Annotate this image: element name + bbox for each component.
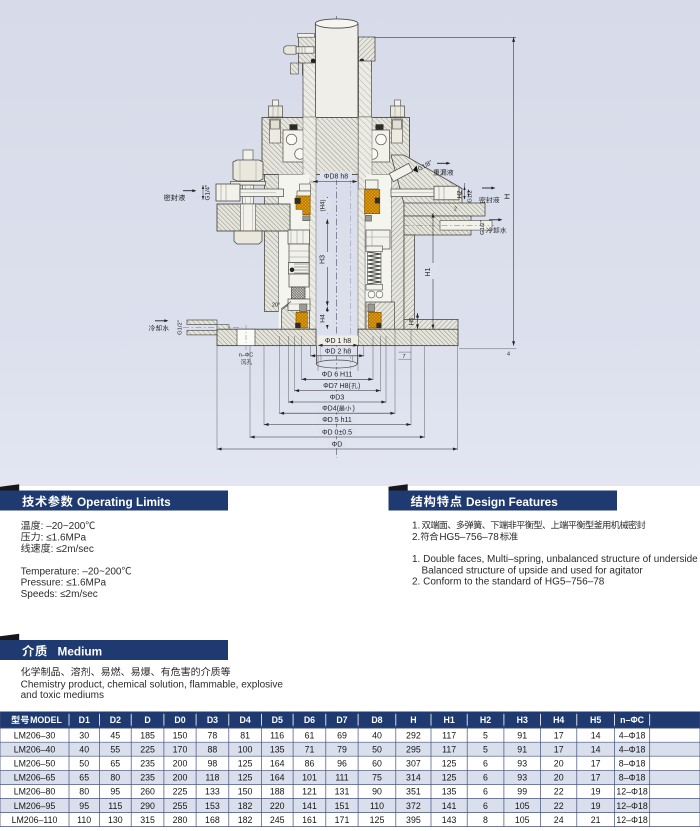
svg-text:H5: H5 [409,317,416,325]
svg-text:1. Double faces, Multi–spring,: 1. Double faces, Multi–spring, unbalance… [412,554,700,565]
svg-text:D3: D3 [207,715,218,725]
svg-text:20°: 20° [272,303,280,309]
svg-text:314: 314 [406,773,421,783]
svg-text:1.: 1. [412,520,420,531]
svg-text:65: 65 [79,773,89,783]
svg-text:95: 95 [79,801,89,811]
svg-text:60: 60 [372,759,382,769]
svg-text:200: 200 [173,773,188,783]
svg-text:81: 81 [240,730,250,740]
svg-text:71: 71 [305,745,315,755]
svg-text:n–ΦC: n–ΦC [620,715,644,725]
svg-text:4–Φ18: 4–Φ18 [619,745,646,755]
svg-text:86: 86 [305,759,315,769]
svg-text:40: 40 [372,730,382,740]
svg-text:220: 220 [270,801,285,811]
svg-text:7: 7 [403,354,406,360]
svg-text:88: 88 [208,745,218,755]
svg-text:17: 17 [554,730,564,740]
svg-text:150: 150 [173,730,188,740]
svg-text:D1: D1 [79,715,90,725]
svg-text:100: 100 [238,745,253,755]
svg-text:H4: H4 [553,715,564,725]
svg-text:121: 121 [302,787,317,797]
svg-text:20: 20 [554,759,564,769]
svg-text:6: 6 [483,801,488,811]
svg-text:225: 225 [173,787,188,797]
svg-text:95: 95 [110,787,120,797]
svg-text:105: 105 [515,801,530,811]
svg-text:H3: H3 [319,255,326,264]
svg-text:307: 307 [406,759,421,769]
svg-text:151: 151 [335,801,350,811]
svg-text:161: 161 [302,815,317,825]
svg-text:: ≤2m/sec: : ≤2m/sec [51,544,94,555]
svg-text:21: 21 [591,815,601,825]
svg-text:ΦD 0±0.5: ΦD 0±0.5 [322,429,352,436]
svg-text:22: 22 [554,787,564,797]
svg-text:110: 110 [77,815,91,825]
svg-text:6: 6 [483,773,488,783]
svg-text:4: 4 [507,352,510,358]
svg-text:164: 164 [270,759,285,769]
svg-text:91: 91 [517,730,527,740]
svg-text:LM206–80: LM206–80 [14,787,56,797]
svg-text:78: 78 [208,730,218,740]
svg-text:Pressure: ≤1.6MPa: Pressure: ≤1.6MPa [21,578,107,589]
svg-text:D6: D6 [304,715,315,725]
svg-text:ΦD4(: ΦD4( [322,406,340,413]
svg-text:Medium: Medium [58,644,103,658]
svg-text:125: 125 [442,759,457,769]
svg-text:H1: H1 [443,715,454,725]
svg-text:135: 135 [442,787,457,797]
svg-text:2: 2 [454,207,457,213]
svg-text:12–Φ18: 12–Φ18 [616,815,648,825]
svg-text:H2: H2 [480,715,491,725]
svg-text:: –20~200: : –20~200 [41,521,86,532]
svg-text:141: 141 [302,801,317,811]
svg-text:H4: H4 [320,314,327,323]
svg-text:): ) [353,406,355,413]
svg-text:61: 61 [305,730,315,740]
svg-text:372: 372 [406,801,421,811]
svg-text:ΦD 5 h11: ΦD 5 h11 [322,417,352,424]
svg-text:22: 22 [554,801,564,811]
svg-text:ΦD: ΦD [332,441,343,448]
svg-text:12–Φ18: 12–Φ18 [616,801,648,811]
svg-text:115: 115 [108,801,122,811]
svg-text:91: 91 [517,745,527,755]
svg-text:ΦD 1 h8: ΦD 1 h8 [325,338,351,345]
svg-text:17: 17 [591,773,601,783]
svg-text:50: 50 [79,759,89,769]
svg-text:75: 75 [372,773,382,783]
svg-text:40: 40 [79,745,89,755]
svg-text:8–Φ18: 8–Φ18 [619,773,646,783]
svg-text:19: 19 [591,801,601,811]
svg-text:168: 168 [205,815,220,825]
svg-text:395: 395 [406,815,421,825]
svg-text:351: 351 [406,787,421,797]
svg-text:D: D [144,715,150,725]
svg-text:H: H [410,715,416,725]
svg-text:H5: H5 [590,715,601,725]
svg-text:LM206–30: LM206–30 [14,730,56,740]
svg-text:143: 143 [442,815,457,825]
svg-text:65: 65 [110,759,120,769]
svg-text:ΦD 6 H11: ΦD 6 H11 [322,372,353,379]
svg-text:4–Φ18: 4–Φ18 [619,730,646,740]
svg-text:: ≤1.6MPa: : ≤1.6MPa [41,532,87,543]
svg-text:131: 131 [335,787,350,797]
svg-text:LM206–65: LM206–65 [14,773,56,783]
svg-text:141: 141 [442,801,457,811]
svg-text:ΦD3: ΦD3 [330,394,345,401]
svg-text:2. Conform to the standard of: 2. Conform to the standard of HG5–756–78 [412,577,605,588]
svg-text:101: 101 [302,773,317,783]
svg-text:D7: D7 [336,715,347,725]
svg-text:LM206–110: LM206–110 [12,815,58,825]
svg-text:LM206–50: LM206–50 [14,759,56,769]
svg-text:ΦD7 H8(: ΦD7 H8( [323,383,351,390]
svg-text:19: 19 [591,787,601,797]
svg-text:Design Features: Design Features [466,495,558,509]
svg-text:5: 5 [483,745,488,755]
svg-text:99: 99 [517,787,527,797]
svg-text:14: 14 [591,745,601,755]
svg-text:G1/2": G1/2" [178,320,184,335]
svg-text:30: 30 [79,730,89,740]
svg-text:8: 8 [483,815,488,825]
svg-text:93: 93 [517,773,527,783]
svg-text:153: 153 [205,801,220,811]
svg-text:280: 280 [173,815,188,825]
svg-text:133: 133 [205,787,220,797]
svg-text:24: 24 [554,815,564,825]
svg-text:125: 125 [238,759,253,769]
svg-text:): ) [358,383,360,390]
svg-text:H1: H1 [425,267,432,276]
svg-text:MODEL: MODEL [30,715,62,725]
svg-text:H: H [503,194,512,199]
svg-text:Chemistry product, chemical so: Chemistry product, chemical solution, fl… [21,679,284,690]
svg-text:80: 80 [110,773,120,783]
svg-text:125: 125 [442,773,457,783]
svg-text:G1/4": G1/4" [205,185,212,201]
svg-text:96: 96 [337,759,347,769]
svg-text:80: 80 [79,787,89,797]
svg-text:Balanced structure of upside a: Balanced structure of upside and used fo… [422,565,644,576]
svg-text:Temperature: –20~200: Temperature: –20~200 [21,566,122,577]
svg-text:90: 90 [372,787,382,797]
svg-text:(H4): (H4) [320,199,327,211]
svg-text:117: 117 [442,745,456,755]
svg-text:315: 315 [140,815,155,825]
svg-text:164: 164 [270,773,285,783]
svg-text:LM206–40: LM206–40 [14,745,56,755]
svg-text:HG5–756–78: HG5–756–78 [439,532,499,543]
svg-text:245: 245 [270,815,285,825]
svg-text:69: 69 [337,730,347,740]
svg-text:Operating Limits: Operating Limits [77,495,171,509]
svg-text:110: 110 [370,801,384,811]
svg-text:255: 255 [173,801,188,811]
svg-text:116: 116 [270,730,284,740]
svg-text:125: 125 [370,815,385,825]
svg-text:200: 200 [173,759,188,769]
svg-text:117: 117 [442,730,456,740]
svg-text:105: 105 [515,815,530,825]
svg-text:130: 130 [108,815,123,825]
svg-text:45: 45 [110,730,120,740]
svg-text:Speeds: ≤2m/sec: Speeds: ≤2m/sec [21,589,98,600]
svg-text:17: 17 [591,759,601,769]
svg-text:125: 125 [238,773,253,783]
svg-text:D0: D0 [174,715,185,725]
svg-text:6: 6 [483,759,488,769]
svg-text:G1/2": G1/2" [480,220,486,235]
svg-text:ΦD 2 h8: ΦD 2 h8 [325,349,351,356]
svg-text:and toxic mediums: and toxic mediums [21,690,104,701]
svg-text:182: 182 [238,815,253,825]
svg-text:D4: D4 [239,715,250,725]
svg-text:135: 135 [270,745,285,755]
svg-text:H3: H3 [517,715,528,725]
svg-text:n–ΦC: n–ΦC [239,353,254,359]
svg-text:185: 185 [140,730,155,740]
svg-text:2.: 2. [412,532,420,543]
svg-text:118: 118 [205,773,219,783]
svg-text:295: 295 [406,745,421,755]
svg-text:93: 93 [517,759,527,769]
svg-text:290: 290 [140,801,155,811]
svg-text:170: 170 [173,745,188,755]
svg-text:D8: D8 [371,715,382,725]
svg-text:ΦD8 h8: ΦD8 h8 [324,173,348,180]
svg-text:98: 98 [208,759,218,769]
svg-text:LM206–95: LM206–95 [14,801,56,811]
svg-text:225: 225 [140,745,155,755]
svg-text:6: 6 [483,787,488,797]
svg-text:235: 235 [140,759,155,769]
svg-text:292: 292 [406,730,421,740]
svg-text:55: 55 [110,745,120,755]
svg-text:260: 260 [140,787,155,797]
svg-text:14: 14 [591,730,601,740]
svg-text:8–Φ18: 8–Φ18 [619,759,646,769]
svg-text:235: 235 [140,773,155,783]
svg-text:D5: D5 [272,715,283,725]
svg-text:171: 171 [335,815,350,825]
svg-text:12–Φ18: 12–Φ18 [616,787,648,797]
svg-text:111: 111 [335,773,348,783]
svg-text:17: 17 [554,745,564,755]
svg-text:50: 50 [372,745,382,755]
svg-text:D2: D2 [110,715,121,725]
svg-text:79: 79 [337,745,347,755]
svg-text:20: 20 [554,773,564,783]
svg-text:188: 188 [270,787,285,797]
svg-text:H2: H2 [457,190,464,198]
svg-text:182: 182 [238,801,253,811]
svg-text:150: 150 [238,787,253,797]
svg-text:5: 5 [483,730,488,740]
